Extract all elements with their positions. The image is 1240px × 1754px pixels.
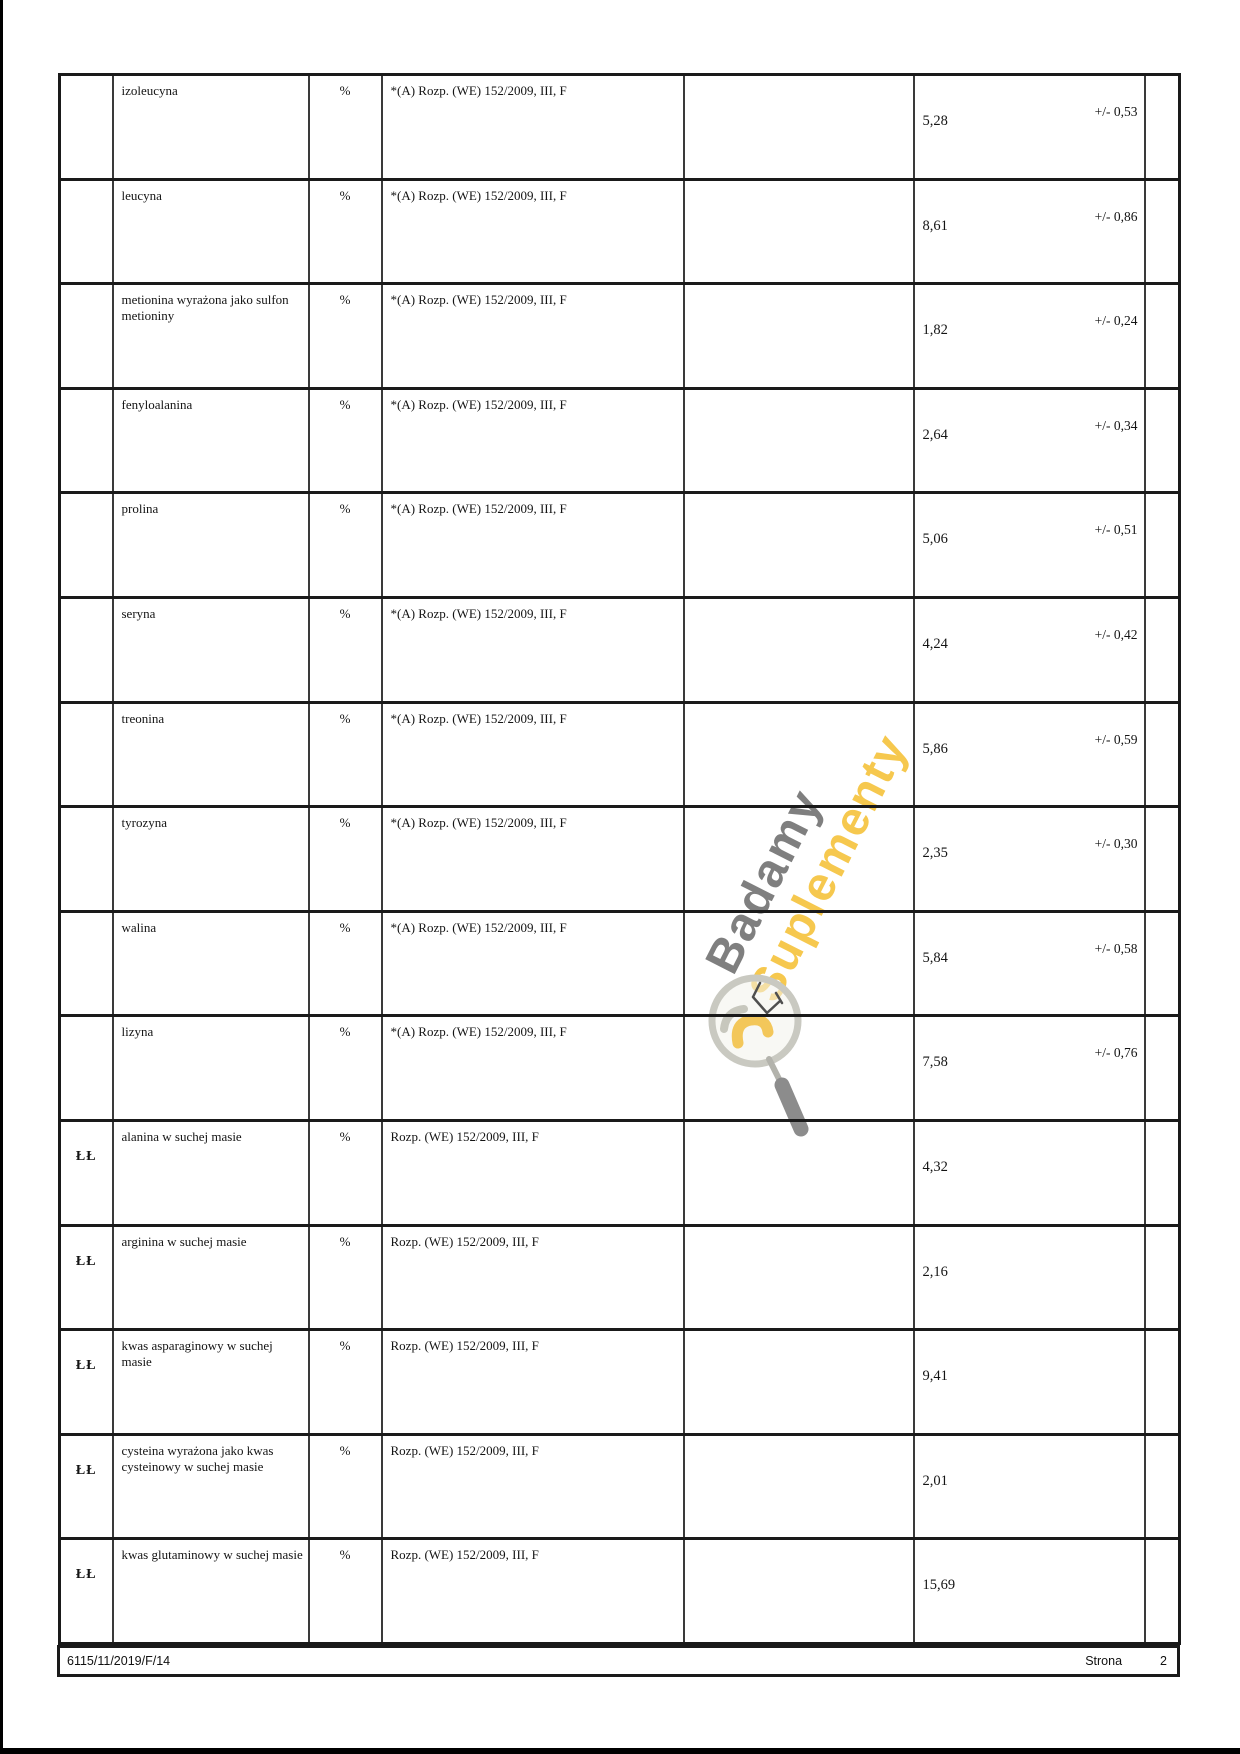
empty-narrow-cell <box>1145 1434 1180 1539</box>
unit-value: % <box>310 76 381 99</box>
row-label-cell: ŁŁ <box>60 1434 113 1539</box>
method-reference: *(A) Rozp. (WE) 152/2009, III, F <box>383 913 683 936</box>
uncertainty-value: +/- 0,30 <box>1095 836 1138 852</box>
parameter-cell: izoleucyna <box>113 75 309 180</box>
unit-cell: % <box>309 1120 382 1225</box>
parameter-name: prolina <box>114 494 308 517</box>
unit-cell: % <box>309 597 382 702</box>
method-cell: *(A) Rozp. (WE) 152/2009, III, F <box>382 179 684 284</box>
row-label-cell <box>60 75 113 180</box>
scan-edge-left <box>0 0 3 1754</box>
unit-value: % <box>310 913 381 936</box>
unit-cell: % <box>309 1539 382 1644</box>
method-reference: *(A) Rozp. (WE) 152/2009, III, F <box>383 181 683 204</box>
parameter-cell: kwas glutaminowy w suchej masie <box>113 1539 309 1644</box>
result-value: 5,28 <box>923 113 948 130</box>
table-row: tyrozyna % *(A) Rozp. (WE) 152/2009, III… <box>60 807 1180 912</box>
parameter-name: izoleucyna <box>114 76 308 99</box>
unit-value: % <box>310 1122 381 1145</box>
row-label-cell <box>60 911 113 1016</box>
result-value: 5,86 <box>923 741 948 758</box>
empty-cell <box>684 807 914 912</box>
empty-narrow-cell <box>1145 911 1180 1016</box>
result-cell: 5,84 +/- 0,58 <box>914 911 1145 1016</box>
empty-narrow-cell <box>1145 284 1180 389</box>
empty-narrow-cell <box>1145 179 1180 284</box>
result-cell: 2,16 <box>914 1225 1145 1330</box>
method-cell: *(A) Rozp. (WE) 152/2009, III, F <box>382 1016 684 1121</box>
method-cell: *(A) Rozp. (WE) 152/2009, III, F <box>382 493 684 598</box>
row-label-cell: ŁŁ <box>60 1539 113 1644</box>
unit-value: % <box>310 1017 381 1040</box>
result-value: 2,01 <box>923 1473 948 1490</box>
method-reference: Rozp. (WE) 152/2009, III, F <box>383 1540 683 1563</box>
empty-narrow-cell <box>1145 1225 1180 1330</box>
result-value: 7,58 <box>923 1054 948 1071</box>
unit-value: % <box>310 704 381 727</box>
method-cell: *(A) Rozp. (WE) 152/2009, III, F <box>382 807 684 912</box>
empty-cell <box>684 1016 914 1121</box>
method-reference: *(A) Rozp. (WE) 152/2009, III, F <box>383 285 683 308</box>
uncertainty-value: +/- 0,58 <box>1095 941 1138 957</box>
page-number: 2 <box>1160 1654 1167 1668</box>
row-label: ŁŁ <box>61 1122 112 1165</box>
uncertainty-value: +/- 0,51 <box>1095 522 1138 538</box>
empty-narrow-cell <box>1145 702 1180 807</box>
unit-cell: % <box>309 1016 382 1121</box>
parameter-cell: arginina w suchej masie <box>113 1225 309 1330</box>
parameter-name: cysteina wyrażona jako kwas cysteinowy w… <box>114 1436 308 1475</box>
method-cell: *(A) Rozp. (WE) 152/2009, III, F <box>382 388 684 493</box>
unit-value: % <box>310 181 381 204</box>
page-footer: 6115/11/2019/F/14 Strona 2 <box>57 1645 1180 1677</box>
empty-cell <box>684 75 914 180</box>
table-row: walina % *(A) Rozp. (WE) 152/2009, III, … <box>60 911 1180 1016</box>
parameter-name: leucyna <box>114 181 308 204</box>
row-label <box>61 913 112 940</box>
table-row: ŁŁ kwas asparaginowy w suchej masie % Ro… <box>60 1330 1180 1435</box>
row-label <box>61 285 112 312</box>
method-cell: *(A) Rozp. (WE) 152/2009, III, F <box>382 597 684 702</box>
result-cell: 8,61 +/- 0,86 <box>914 179 1145 284</box>
parameter-name: alanina w suchej masie <box>114 1122 308 1145</box>
result-cell: 15,69 <box>914 1539 1145 1644</box>
page-label: Strona <box>1085 1654 1122 1668</box>
method-reference: *(A) Rozp. (WE) 152/2009, III, F <box>383 494 683 517</box>
method-reference: Rozp. (WE) 152/2009, III, F <box>383 1227 683 1250</box>
table-row: seryna % *(A) Rozp. (WE) 152/2009, III, … <box>60 597 1180 702</box>
empty-cell <box>684 1434 914 1539</box>
result-value: 9,41 <box>923 1368 948 1385</box>
unit-cell: % <box>309 911 382 1016</box>
unit-cell: % <box>309 388 382 493</box>
row-label-cell <box>60 493 113 598</box>
method-cell: *(A) Rozp. (WE) 152/2009, III, F <box>382 911 684 1016</box>
unit-cell: % <box>309 807 382 912</box>
parameter-name: seryna <box>114 599 308 622</box>
result-cell: 7,58 +/- 0,76 <box>914 1016 1145 1121</box>
empty-narrow-cell <box>1145 1539 1180 1644</box>
method-reference: *(A) Rozp. (WE) 152/2009, III, F <box>383 1017 683 1040</box>
row-label <box>61 704 112 731</box>
row-label: ŁŁ <box>61 1436 112 1479</box>
parameter-name: fenyloalanina <box>114 390 308 413</box>
empty-cell <box>684 911 914 1016</box>
table-row: ŁŁ alanina w suchej masie % Rozp. (WE) 1… <box>60 1120 1180 1225</box>
empty-narrow-cell <box>1145 1330 1180 1435</box>
method-cell: Rozp. (WE) 152/2009, III, F <box>382 1539 684 1644</box>
row-label <box>61 494 112 521</box>
parameter-name: arginina w suchej masie <box>114 1227 308 1250</box>
row-label-cell <box>60 284 113 389</box>
row-label-cell <box>60 388 113 493</box>
result-cell: 5,06 +/- 0,51 <box>914 493 1145 598</box>
row-label-cell <box>60 597 113 702</box>
uncertainty-value: +/- 0,24 <box>1095 313 1138 329</box>
row-label: ŁŁ <box>61 1331 112 1374</box>
method-cell: Rozp. (WE) 152/2009, III, F <box>382 1330 684 1435</box>
method-cell: *(A) Rozp. (WE) 152/2009, III, F <box>382 284 684 389</box>
unit-cell: % <box>309 179 382 284</box>
parameter-name: walina <box>114 913 308 936</box>
row-label <box>61 76 112 103</box>
empty-cell <box>684 1539 914 1644</box>
empty-narrow-cell <box>1145 75 1180 180</box>
parameter-cell: seryna <box>113 597 309 702</box>
result-cell: 4,32 <box>914 1120 1145 1225</box>
result-value: 15,69 <box>923 1577 956 1594</box>
result-value: 1,82 <box>923 322 948 339</box>
unit-value: % <box>310 599 381 622</box>
parameter-name: kwas glutaminowy w suchej masie <box>114 1540 308 1563</box>
uncertainty-value: +/- 0,34 <box>1095 418 1138 434</box>
uncertainty-value: +/- 0,76 <box>1095 1045 1138 1061</box>
parameter-cell: metionina wyrażona jako sulfon metioniny <box>113 284 309 389</box>
unit-value: % <box>310 494 381 517</box>
row-label-cell <box>60 702 113 807</box>
empty-cell <box>684 493 914 598</box>
row-label-cell <box>60 807 113 912</box>
method-cell: Rozp. (WE) 152/2009, III, F <box>382 1434 684 1539</box>
empty-narrow-cell <box>1145 1120 1180 1225</box>
result-cell: 2,35 +/- 0,30 <box>914 807 1145 912</box>
row-label-cell: ŁŁ <box>60 1120 113 1225</box>
table-row: ŁŁ kwas glutaminowy w suchej masie % Roz… <box>60 1539 1180 1644</box>
result-value: 4,24 <box>923 636 948 653</box>
result-value: 8,61 <box>923 218 948 235</box>
result-value: 2,35 <box>923 845 948 862</box>
parameter-name: treonina <box>114 704 308 727</box>
row-label-cell <box>60 179 113 284</box>
result-cell: 9,41 <box>914 1330 1145 1435</box>
result-cell: 2,64 +/- 0,34 <box>914 388 1145 493</box>
empty-cell <box>684 388 914 493</box>
unit-cell: % <box>309 702 382 807</box>
row-label <box>61 599 112 626</box>
uncertainty-value: +/- 0,53 <box>1095 104 1138 120</box>
parameter-cell: fenyloalanina <box>113 388 309 493</box>
empty-cell <box>684 284 914 389</box>
method-cell: *(A) Rozp. (WE) 152/2009, III, F <box>382 702 684 807</box>
parameter-cell: walina <box>113 911 309 1016</box>
parameter-name: lizyna <box>114 1017 308 1040</box>
empty-cell <box>684 1120 914 1225</box>
row-label <box>61 390 112 417</box>
table-row: metionina wyrażona jako sulfon metioniny… <box>60 284 1180 389</box>
table-row: izoleucyna % *(A) Rozp. (WE) 152/2009, I… <box>60 75 1180 180</box>
unit-value: % <box>310 1227 381 1250</box>
parameter-cell: lizyna <box>113 1016 309 1121</box>
table-row: treonina % *(A) Rozp. (WE) 152/2009, III… <box>60 702 1180 807</box>
result-value: 5,84 <box>923 950 948 967</box>
parameter-name: tyrozyna <box>114 808 308 831</box>
unit-cell: % <box>309 75 382 180</box>
row-label-cell <box>60 1016 113 1121</box>
method-cell: Rozp. (WE) 152/2009, III, F <box>382 1225 684 1330</box>
document-number: 6115/11/2019/F/14 <box>60 1654 170 1668</box>
unit-cell: % <box>309 284 382 389</box>
row-label-cell: ŁŁ <box>60 1225 113 1330</box>
unit-value: % <box>310 1331 381 1354</box>
table-row: leucyna % *(A) Rozp. (WE) 152/2009, III,… <box>60 179 1180 284</box>
empty-cell <box>684 597 914 702</box>
unit-value: % <box>310 808 381 831</box>
method-reference: *(A) Rozp. (WE) 152/2009, III, F <box>383 704 683 727</box>
method-cell: *(A) Rozp. (WE) 152/2009, III, F <box>382 75 684 180</box>
empty-cell <box>684 1225 914 1330</box>
table-row: ŁŁ arginina w suchej masie % Rozp. (WE) … <box>60 1225 1180 1330</box>
unit-cell: % <box>309 1225 382 1330</box>
empty-cell <box>684 1330 914 1435</box>
empty-narrow-cell <box>1145 388 1180 493</box>
empty-narrow-cell <box>1145 493 1180 598</box>
parameter-name: metionina wyrażona jako sulfon metioniny <box>114 285 308 324</box>
result-value: 2,64 <box>923 427 948 444</box>
method-reference: *(A) Rozp. (WE) 152/2009, III, F <box>383 599 683 622</box>
parameter-cell: leucyna <box>113 179 309 284</box>
unit-value: % <box>310 390 381 413</box>
result-cell: 1,82 +/- 0,24 <box>914 284 1145 389</box>
row-label <box>61 181 112 208</box>
row-label <box>61 808 112 835</box>
empty-narrow-cell <box>1145 597 1180 702</box>
parameter-cell: cysteina wyrażona jako kwas cysteinowy w… <box>113 1434 309 1539</box>
empty-cell <box>684 179 914 284</box>
method-reference: Rozp. (WE) 152/2009, III, F <box>383 1122 683 1145</box>
row-label <box>61 1017 112 1044</box>
parameter-cell: tyrozyna <box>113 807 309 912</box>
result-value: 4,32 <box>923 1159 948 1176</box>
uncertainty-value: +/- 0,42 <box>1095 627 1138 643</box>
method-cell: Rozp. (WE) 152/2009, III, F <box>382 1120 684 1225</box>
unit-cell: % <box>309 1330 382 1435</box>
unit-cell: % <box>309 1434 382 1539</box>
method-reference: *(A) Rozp. (WE) 152/2009, III, F <box>383 390 683 413</box>
empty-cell <box>684 702 914 807</box>
row-label-cell: ŁŁ <box>60 1330 113 1435</box>
row-label: ŁŁ <box>61 1540 112 1583</box>
row-label: ŁŁ <box>61 1227 112 1270</box>
result-cell: 5,86 +/- 0,59 <box>914 702 1145 807</box>
table-row: fenyloalanina % *(A) Rozp. (WE) 152/2009… <box>60 388 1180 493</box>
table-row: prolina % *(A) Rozp. (WE) 152/2009, III,… <box>60 493 1180 598</box>
unit-value: % <box>310 1436 381 1459</box>
result-cell: 5,28 +/- 0,53 <box>914 75 1145 180</box>
parameter-cell: alanina w suchej masie <box>113 1120 309 1225</box>
scan-edge-bottom <box>0 1748 1240 1754</box>
result-value: 5,06 <box>923 531 948 548</box>
method-reference: *(A) Rozp. (WE) 152/2009, III, F <box>383 808 683 831</box>
parameter-cell: treonina <box>113 702 309 807</box>
unit-cell: % <box>309 493 382 598</box>
result-value: 2,16 <box>923 1264 948 1281</box>
table-row: lizyna % *(A) Rozp. (WE) 152/2009, III, … <box>60 1016 1180 1121</box>
parameter-name: kwas asparaginowy w suchej masie <box>114 1331 308 1370</box>
empty-narrow-cell <box>1145 807 1180 912</box>
result-cell: 2,01 <box>914 1434 1145 1539</box>
table-row: ŁŁ cysteina wyrażona jako kwas cysteinow… <box>60 1434 1180 1539</box>
parameter-cell: prolina <box>113 493 309 598</box>
empty-narrow-cell <box>1145 1016 1180 1121</box>
method-reference: Rozp. (WE) 152/2009, III, F <box>383 1331 683 1354</box>
uncertainty-value: +/- 0,59 <box>1095 732 1138 748</box>
results-table-body: izoleucyna % *(A) Rozp. (WE) 152/2009, I… <box>60 75 1180 1644</box>
method-reference: *(A) Rozp. (WE) 152/2009, III, F <box>383 76 683 99</box>
unit-value: % <box>310 1540 381 1563</box>
method-reference: Rozp. (WE) 152/2009, III, F <box>383 1436 683 1459</box>
results-table: izoleucyna % *(A) Rozp. (WE) 152/2009, I… <box>58 73 1181 1645</box>
result-cell: 4,24 +/- 0,42 <box>914 597 1145 702</box>
uncertainty-value: +/- 0,86 <box>1095 209 1138 225</box>
unit-value: % <box>310 285 381 308</box>
parameter-cell: kwas asparaginowy w suchej masie <box>113 1330 309 1435</box>
